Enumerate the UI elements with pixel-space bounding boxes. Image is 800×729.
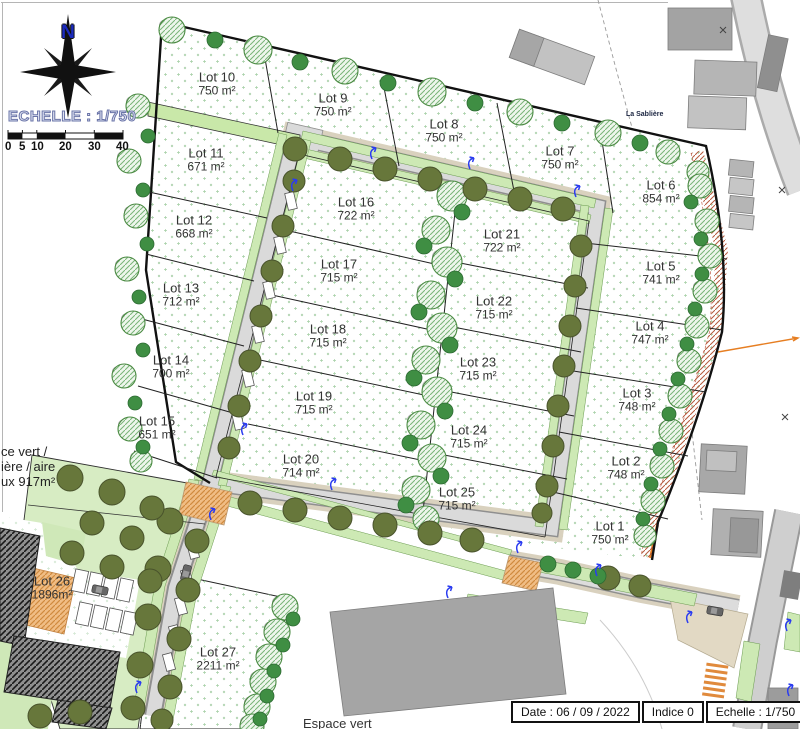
site-plan-drawing <box>0 0 800 729</box>
scale-bar <box>8 130 123 139</box>
compass-rose-icon <box>20 14 116 118</box>
stairs-marking <box>702 663 728 699</box>
map-canvas: N ECHELLE : 1/750 0 5 10 20 30 40 La Sab… <box>0 0 800 729</box>
